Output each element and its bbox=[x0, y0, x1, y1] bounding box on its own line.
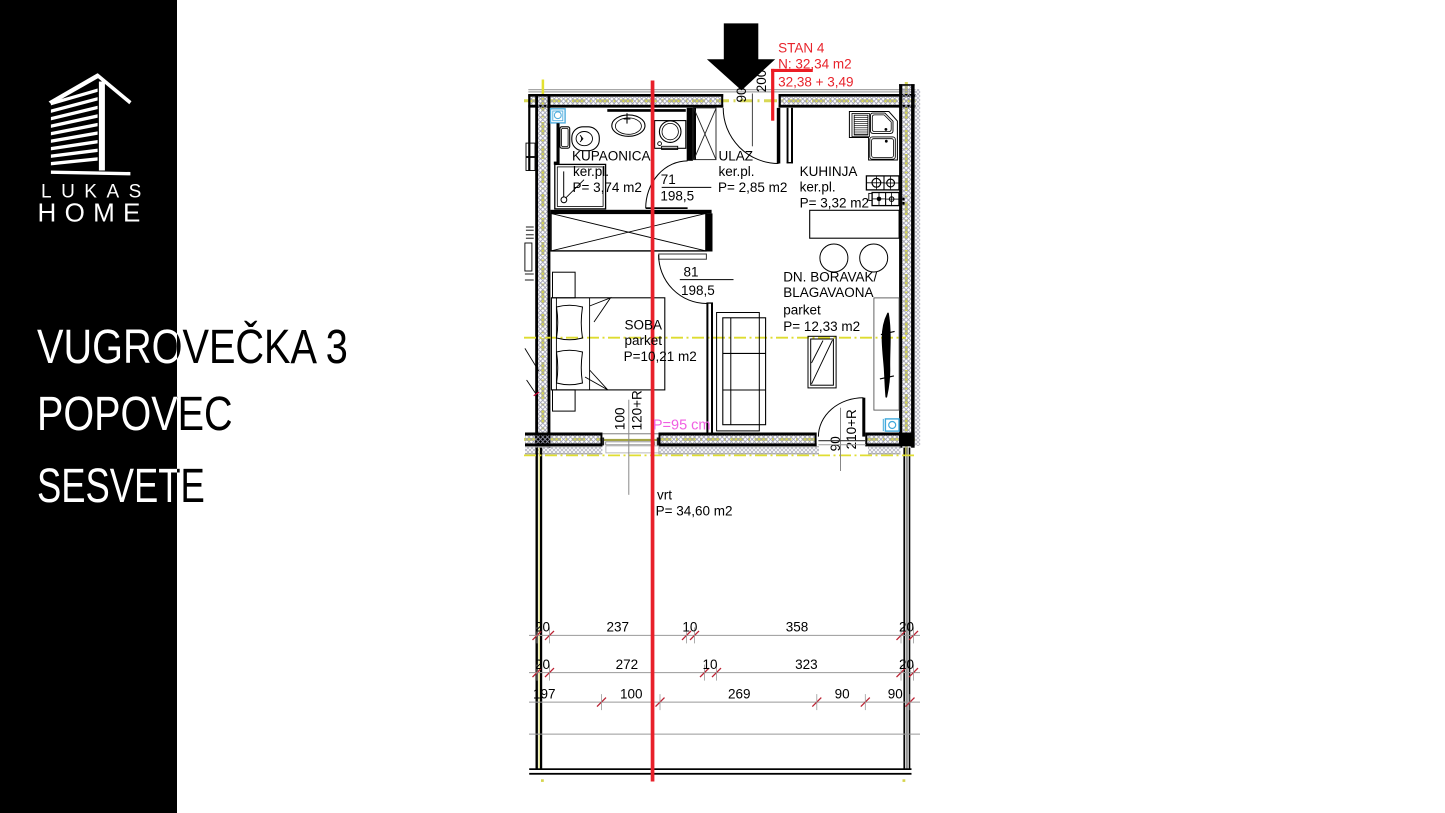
svg-text:20: 20 bbox=[899, 620, 914, 635]
svg-text:198,5: 198,5 bbox=[681, 283, 715, 298]
svg-text:237: 237 bbox=[607, 620, 630, 635]
svg-text:P= 3,32 m2: P= 3,32 m2 bbox=[800, 195, 869, 210]
svg-text:120+R: 120+R bbox=[630, 390, 645, 430]
svg-text:198,5: 198,5 bbox=[660, 189, 694, 204]
svg-text:90: 90 bbox=[888, 686, 903, 701]
svg-text:P= 3,74 m2: P= 3,74 m2 bbox=[573, 180, 642, 195]
svg-text:71: 71 bbox=[661, 172, 676, 187]
svg-text:ker.pl.: ker.pl. bbox=[573, 164, 609, 179]
svg-text:ker.pl.: ker.pl. bbox=[719, 164, 755, 179]
svg-text:197: 197 bbox=[533, 686, 556, 701]
svg-text:81: 81 bbox=[683, 265, 698, 280]
svg-text:P= 34,60 m2: P= 34,60 m2 bbox=[656, 503, 733, 518]
svg-text:P=95 cm: P=95 cm bbox=[653, 417, 711, 433]
svg-text:P= 2,85 m2: P= 2,85 m2 bbox=[718, 180, 787, 195]
svg-text:STAN 4: STAN 4 bbox=[778, 40, 825, 55]
svg-text:272: 272 bbox=[616, 657, 639, 672]
svg-text:KUPAONICA: KUPAONICA bbox=[572, 148, 651, 163]
svg-text:20: 20 bbox=[535, 620, 550, 635]
svg-text:269: 269 bbox=[728, 686, 751, 701]
svg-text:20: 20 bbox=[899, 657, 914, 672]
svg-text:ULAZ: ULAZ bbox=[719, 148, 754, 163]
svg-text:SOBA: SOBA bbox=[625, 318, 663, 333]
svg-text:100: 100 bbox=[612, 408, 627, 431]
svg-text:ker.pl.: ker.pl. bbox=[800, 180, 836, 195]
svg-text:P=10,21 m2: P=10,21 m2 bbox=[624, 349, 697, 364]
svg-text:parket: parket bbox=[625, 333, 663, 348]
svg-text:P= 12,33 m2: P= 12,33 m2 bbox=[783, 319, 860, 334]
svg-text:DN. BORAVAK/: DN. BORAVAK/ bbox=[783, 269, 877, 284]
svg-text:358: 358 bbox=[786, 620, 809, 635]
svg-text:210+R: 210+R bbox=[844, 409, 859, 449]
svg-text:100: 100 bbox=[620, 686, 643, 701]
svg-text:parket: parket bbox=[783, 303, 821, 318]
svg-text:323: 323 bbox=[795, 657, 818, 672]
svg-text:vrt: vrt bbox=[657, 488, 672, 503]
svg-text:10: 10 bbox=[682, 620, 697, 635]
svg-text:10: 10 bbox=[702, 657, 717, 672]
svg-text:90: 90 bbox=[835, 686, 850, 701]
svg-text:KUHINJA: KUHINJA bbox=[800, 164, 858, 179]
svg-text:20: 20 bbox=[535, 657, 550, 672]
svg-text:32,38 + 3,49: 32,38 + 3,49 bbox=[778, 75, 853, 90]
svg-text:BLAGAVAONA: BLAGAVAONA bbox=[783, 285, 873, 300]
